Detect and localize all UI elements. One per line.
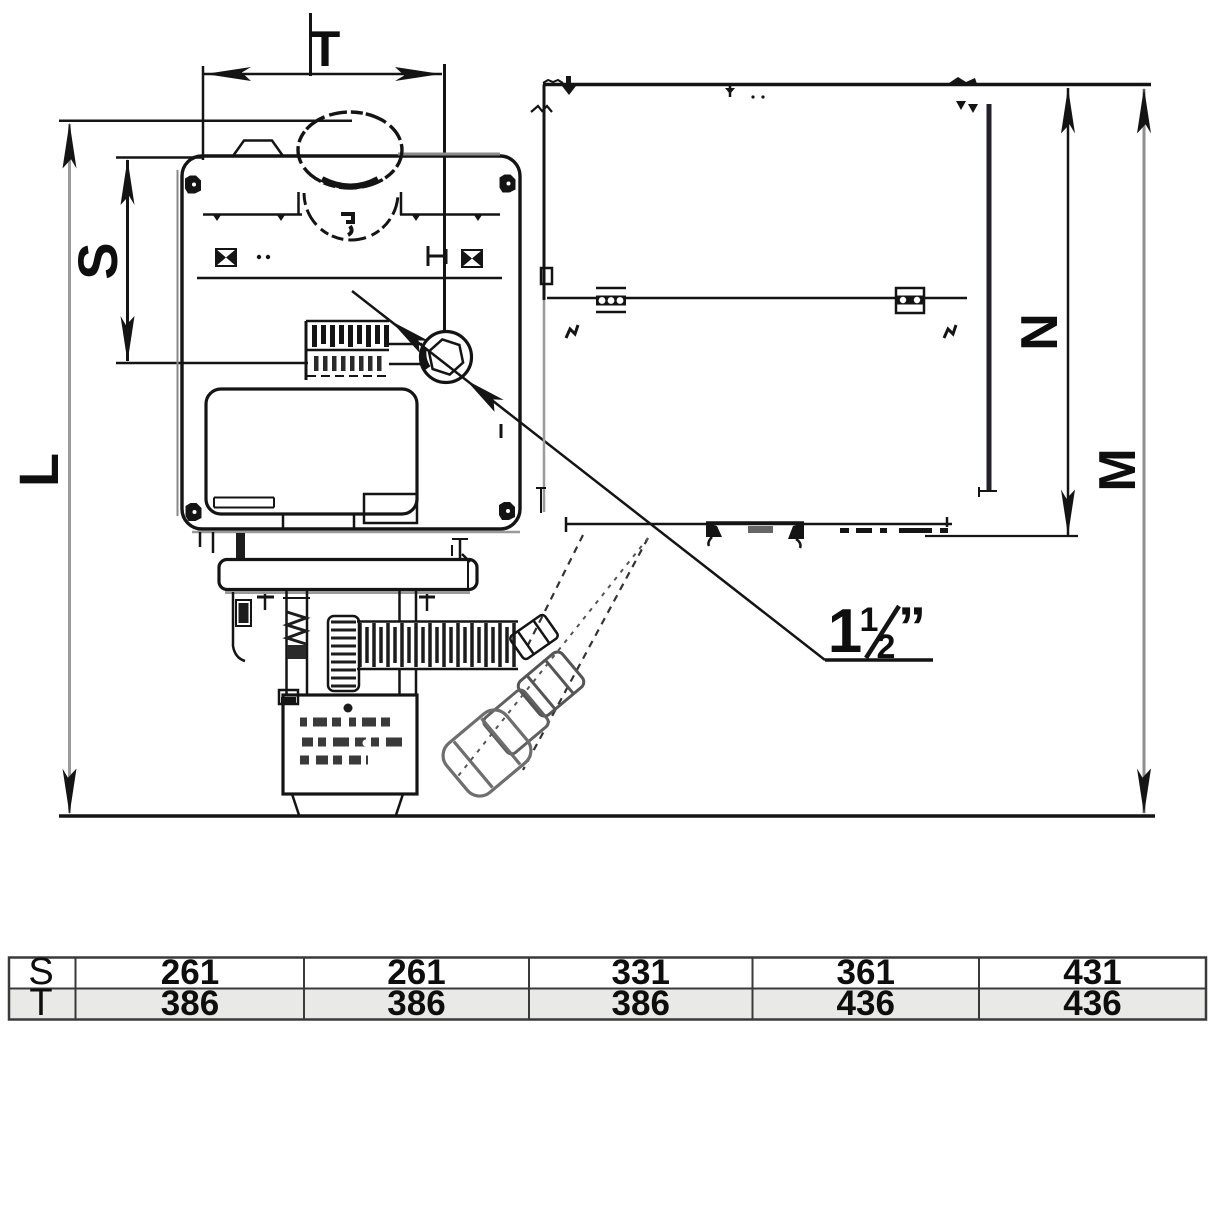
svg-text:436: 436	[837, 984, 895, 1023]
svg-text:2: 2	[877, 628, 896, 666]
svg-text:436: 436	[1063, 984, 1121, 1023]
svg-text:”: ”	[898, 595, 926, 658]
svg-text:L: L	[7, 453, 70, 487]
svg-text:N: N	[1011, 313, 1069, 351]
svg-text:T: T	[310, 21, 341, 77]
svg-text:386: 386	[161, 984, 219, 1023]
svg-text:1: 1	[828, 597, 862, 666]
svg-text:S: S	[66, 242, 129, 279]
svg-text:M: M	[1089, 448, 1147, 491]
svg-text:386: 386	[612, 984, 670, 1023]
svg-text:T: T	[29, 982, 52, 1024]
svg-text:386: 386	[387, 984, 445, 1023]
